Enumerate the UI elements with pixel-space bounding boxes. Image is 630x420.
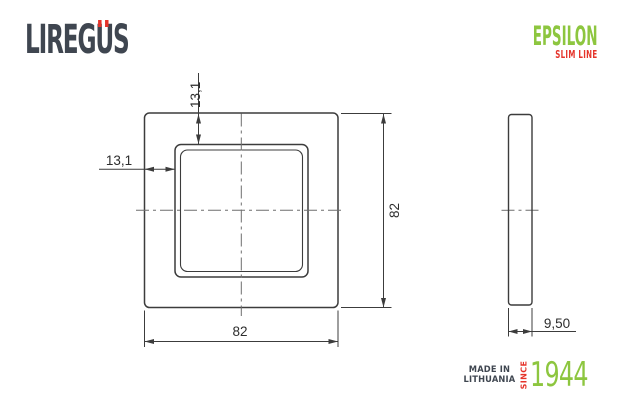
- side-view-outline: [509, 115, 533, 306]
- dim-label-depth: 9,50: [544, 316, 570, 331]
- arrow-icon: [145, 339, 155, 344]
- arrow-icon: [145, 167, 155, 172]
- arrow-icon: [509, 329, 518, 334]
- arrow-icon: [196, 135, 201, 145]
- since-year: 1944: [530, 360, 588, 390]
- since-label-box: SINCE: [518, 362, 529, 388]
- made-in-block: MADE IN LITHUANIA SINCE 1944: [459, 360, 613, 390]
- made-in-text: MADE IN LITHUANIA: [464, 365, 516, 385]
- arrow-icon: [196, 114, 201, 124]
- arrow-icon: [166, 167, 176, 172]
- made-in-line1: MADE IN: [464, 365, 516, 375]
- arrow-icon: [381, 298, 386, 308]
- since-label: SINCE: [519, 361, 528, 390]
- made-in-line2: LITHUANIA: [464, 375, 516, 385]
- arrow-icon: [329, 339, 339, 344]
- dim-label-left-offset: 13,1: [106, 153, 132, 168]
- dim-label-height: 82: [387, 203, 402, 218]
- arrow-icon: [523, 329, 532, 334]
- dim-label-width: 82: [232, 324, 247, 339]
- arrow-icon: [381, 114, 386, 124]
- side-view: [509, 115, 533, 306]
- dim-label-top-offset: 13,1: [188, 82, 203, 108]
